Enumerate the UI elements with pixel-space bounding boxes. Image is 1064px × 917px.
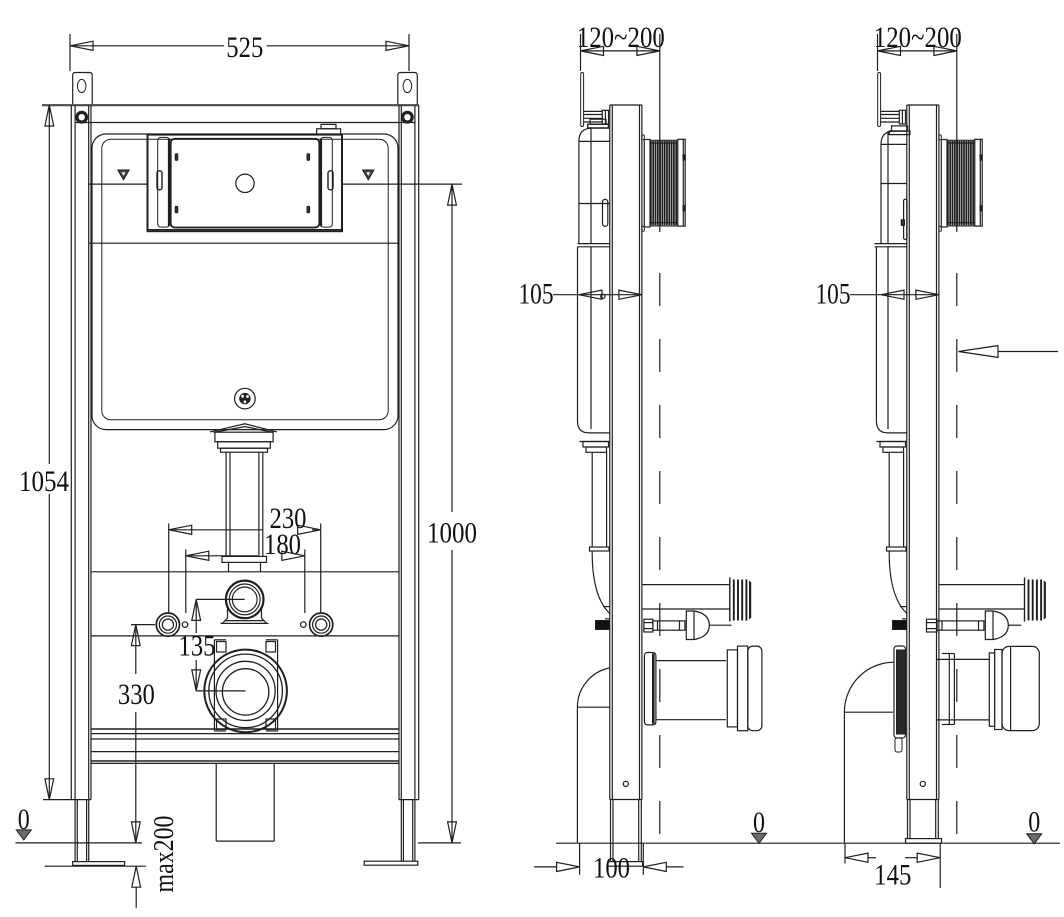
svg-text:1000: 1000 xyxy=(427,517,477,550)
svg-text:145: 145 xyxy=(874,859,911,892)
svg-text:100: 100 xyxy=(593,852,630,885)
svg-text:max200: max200 xyxy=(149,816,180,893)
svg-text:1054: 1054 xyxy=(19,465,69,498)
svg-text:105: 105 xyxy=(519,278,554,311)
svg-text:105: 105 xyxy=(816,278,851,311)
svg-text:135: 135 xyxy=(179,630,216,663)
svg-text:525: 525 xyxy=(226,31,263,64)
svg-text:180: 180 xyxy=(264,528,301,561)
svg-text:330: 330 xyxy=(118,678,155,711)
